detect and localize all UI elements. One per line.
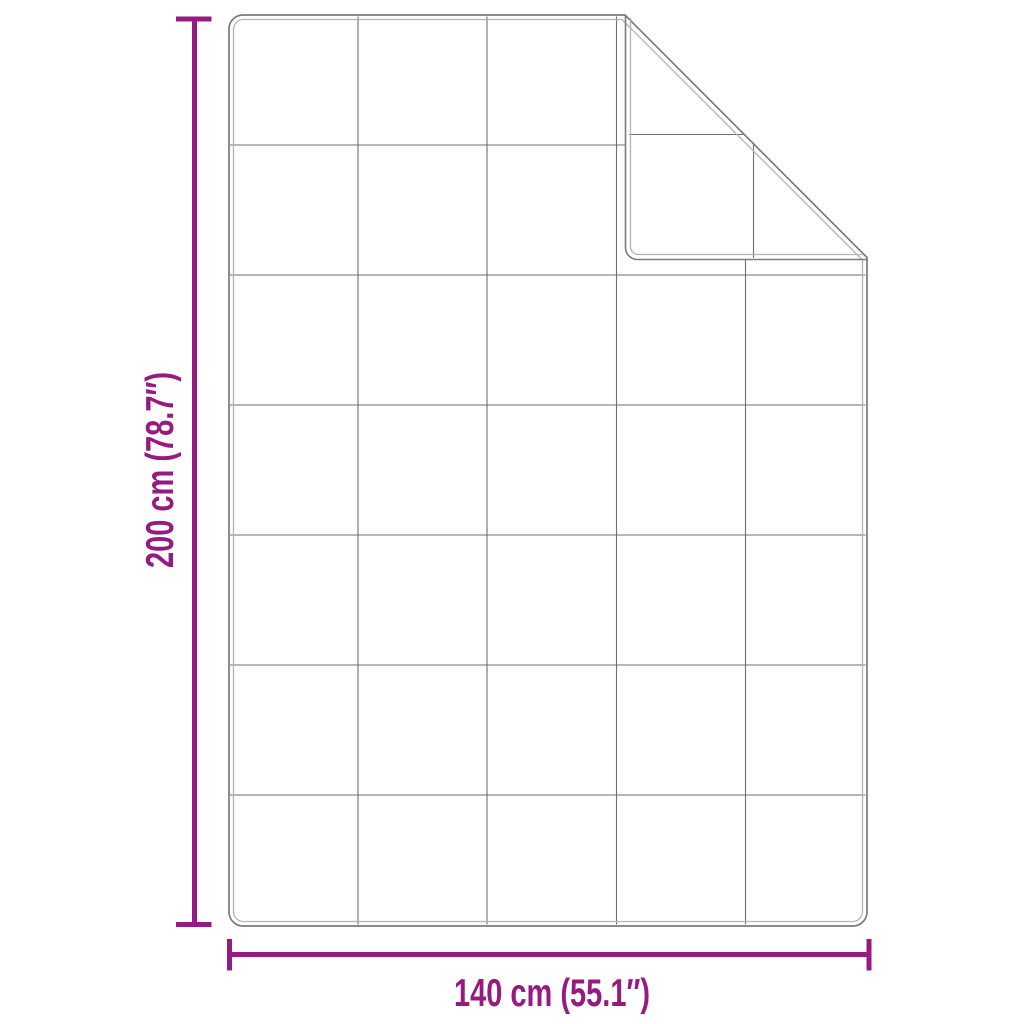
dimension-diagram: 200 cm (78.7″) 140 cm (55.1″) bbox=[0, 0, 1024, 1024]
blanket-outline-outer bbox=[229, 15, 867, 926]
blanket bbox=[229, 15, 867, 926]
width-dimension-label: 140 cm (55.1″) bbox=[454, 972, 650, 1015]
blanket-outline bbox=[229, 15, 867, 926]
width-dimension-line bbox=[230, 939, 870, 971]
blanket-dimension-svg: 200 cm (78.7″) 140 cm (55.1″) bbox=[0, 0, 1024, 1024]
blanket-outline-inner bbox=[234, 20, 863, 922]
dimension-labels: 200 cm (78.7″) 140 cm (55.1″) bbox=[139, 372, 650, 1015]
height-dimension-label: 200 cm (78.7″) bbox=[139, 372, 182, 568]
quilt-grid bbox=[230, 17, 866, 925]
